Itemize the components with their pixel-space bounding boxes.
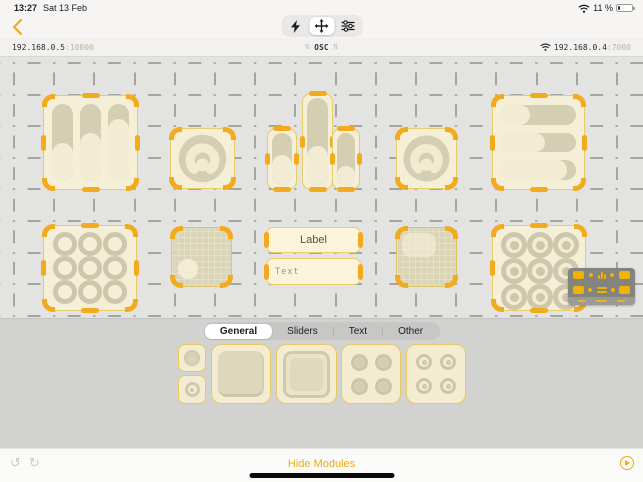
clock: 13:27 <box>14 3 37 13</box>
pad-tool-icon[interactable] <box>619 286 630 294</box>
module-thumb-button[interactable] <box>178 344 206 372</box>
knob-face <box>175 132 230 185</box>
resize-handle[interactable] <box>330 153 335 165</box>
mode-segmented-control <box>281 15 362 37</box>
tab-other[interactable]: Other <box>383 324 438 339</box>
app-window: 13:27Sat 13 Feb 11 % <box>0 0 643 482</box>
module-thumb-pad[interactable] <box>211 344 271 404</box>
resize-handle[interactable] <box>265 153 270 165</box>
local-address: 192.168.0.5:10000 <box>12 43 94 52</box>
bars-icon[interactable] <box>598 272 606 279</box>
resize-handle[interactable] <box>337 187 355 192</box>
back-button[interactable] <box>12 19 26 35</box>
protocol-label: OSC <box>314 43 328 52</box>
module-panel: General Sliders Text Other <box>0 318 643 448</box>
text-field-text: Text <box>275 267 299 277</box>
remote-address: 192.168.0.4:7000 <box>540 43 631 52</box>
fader-widget[interactable] <box>302 93 333 190</box>
label-widget[interactable]: Label <box>266 227 361 253</box>
local-port: :10000 <box>65 43 94 52</box>
widget-mini-toolbar[interactable] <box>568 268 635 305</box>
battery-percent: 11 % <box>593 3 613 13</box>
fader-group-widget[interactable] <box>43 95 138 190</box>
text-widget[interactable]: Text <box>266 258 361 285</box>
move-mode-button[interactable] <box>309 17 334 35</box>
label-text: Label <box>300 234 327 246</box>
fader-widget[interactable] <box>267 128 297 190</box>
resize-handle[interactable] <box>273 187 291 192</box>
home-indicator[interactable] <box>249 473 394 478</box>
move-arrows-icon <box>315 19 329 33</box>
resize-handle[interactable] <box>357 153 362 165</box>
resize-handle[interactable] <box>134 260 139 276</box>
traffic-out-icon: ⇅ <box>333 43 339 51</box>
remote-host: 192.168.0.4 <box>554 43 607 52</box>
xy-pad-widget[interactable] <box>171 227 232 287</box>
fader-track[interactable] <box>108 104 129 181</box>
resize-handle[interactable] <box>41 260 46 276</box>
pad-tool-icon[interactable] <box>619 271 630 279</box>
dot-icon[interactable] <box>588 288 592 292</box>
traffic-in-icon: ⇅ <box>304 43 310 51</box>
resize-handle[interactable] <box>358 232 363 248</box>
resize-handle[interactable] <box>490 260 495 276</box>
resize-handle[interactable] <box>82 93 100 98</box>
play-mode-button[interactable] <box>283 17 308 35</box>
resize-handle[interactable] <box>264 264 269 280</box>
resize-handle[interactable] <box>337 126 355 131</box>
date: Sat 13 Feb <box>43 3 87 13</box>
protocol-indicator: ⇅ OSC ⇅ <box>304 43 338 52</box>
lightning-bolt-icon <box>291 20 301 33</box>
resize-handle[interactable] <box>81 223 99 228</box>
battery-icon <box>616 4 633 12</box>
dot-icon[interactable] <box>589 273 593 277</box>
status-right: 11 % <box>578 3 633 13</box>
resize-handle[interactable] <box>273 126 291 131</box>
resize-handle[interactable] <box>490 135 495 151</box>
resize-handle[interactable] <box>530 187 548 192</box>
resize-handle[interactable] <box>582 135 587 151</box>
resize-handle[interactable] <box>300 136 305 148</box>
fader-track[interactable] <box>52 104 73 181</box>
pad-tool-icon[interactable] <box>573 271 584 279</box>
wifi-icon <box>578 4 590 13</box>
status-left: 13:27Sat 13 Feb <box>14 3 87 13</box>
resize-handle[interactable] <box>530 308 548 313</box>
hide-modules-button[interactable]: Hide Modules <box>288 458 355 470</box>
hslider-track[interactable] <box>501 105 576 125</box>
play-icon <box>625 460 630 466</box>
edit-mode-button[interactable] <box>335 17 360 35</box>
hslider-group-widget[interactable] <box>492 95 585 190</box>
popup-labels-strip <box>568 297 635 305</box>
resize-handle[interactable] <box>358 264 363 280</box>
remote-port: :7000 <box>607 43 631 52</box>
resize-handle[interactable] <box>530 223 548 228</box>
redo-button[interactable]: ↻ <box>29 455 40 471</box>
palette-tabbar: General Sliders Text Other <box>203 322 439 340</box>
tab-text[interactable]: Text <box>334 324 382 339</box>
fader-track[interactable] <box>80 104 101 181</box>
tab-general[interactable]: General <box>205 324 272 339</box>
module-thumb-encoder[interactable] <box>178 375 206 404</box>
radial-knob-widget[interactable] <box>396 128 457 189</box>
resize-handle[interactable] <box>530 93 548 98</box>
resize-handle[interactable] <box>294 153 299 165</box>
button-grid-widget[interactable] <box>43 225 137 311</box>
tab-sliders[interactable]: Sliders <box>272 324 333 339</box>
dot-icon[interactable] <box>611 288 615 292</box>
resize-handle[interactable] <box>309 187 327 192</box>
resize-handle[interactable] <box>81 308 99 313</box>
equals-icon[interactable] <box>597 287 607 293</box>
resize-handle[interactable] <box>135 135 140 151</box>
connection-bar: 192.168.0.5:10000 ⇅ OSC ⇅ 192.168.0.4:70… <box>0 38 643 57</box>
local-host: 192.168.0.5 <box>12 43 65 52</box>
radial-knob-widget[interactable] <box>170 128 235 189</box>
hslider-track[interactable] <box>501 133 576 153</box>
resize-handle[interactable] <box>82 187 100 192</box>
editor-canvas[interactable]: Label Text <box>0 57 643 318</box>
hslider-track[interactable] <box>501 160 576 180</box>
resize-handle[interactable] <box>309 91 327 96</box>
dot-icon[interactable] <box>610 273 614 277</box>
wifi-remote-icon <box>540 43 551 51</box>
xy-pad-widget[interactable] <box>396 227 457 287</box>
play-button[interactable] <box>620 456 634 470</box>
module-thumb-button-grid[interactable] <box>341 344 401 404</box>
undo-button[interactable]: ↺ <box>10 455 21 471</box>
module-thumb-encoder-grid[interactable] <box>406 344 466 404</box>
pad-tool-icon[interactable] <box>573 286 584 294</box>
resize-handle[interactable] <box>264 232 269 248</box>
fader-widget[interactable] <box>332 128 360 190</box>
sliders-icon <box>341 20 354 32</box>
module-thumb-xy-pad[interactable] <box>276 344 337 404</box>
header: 13:27Sat 13 Feb 11 % <box>0 0 643 38</box>
resize-handle[interactable] <box>41 135 46 151</box>
